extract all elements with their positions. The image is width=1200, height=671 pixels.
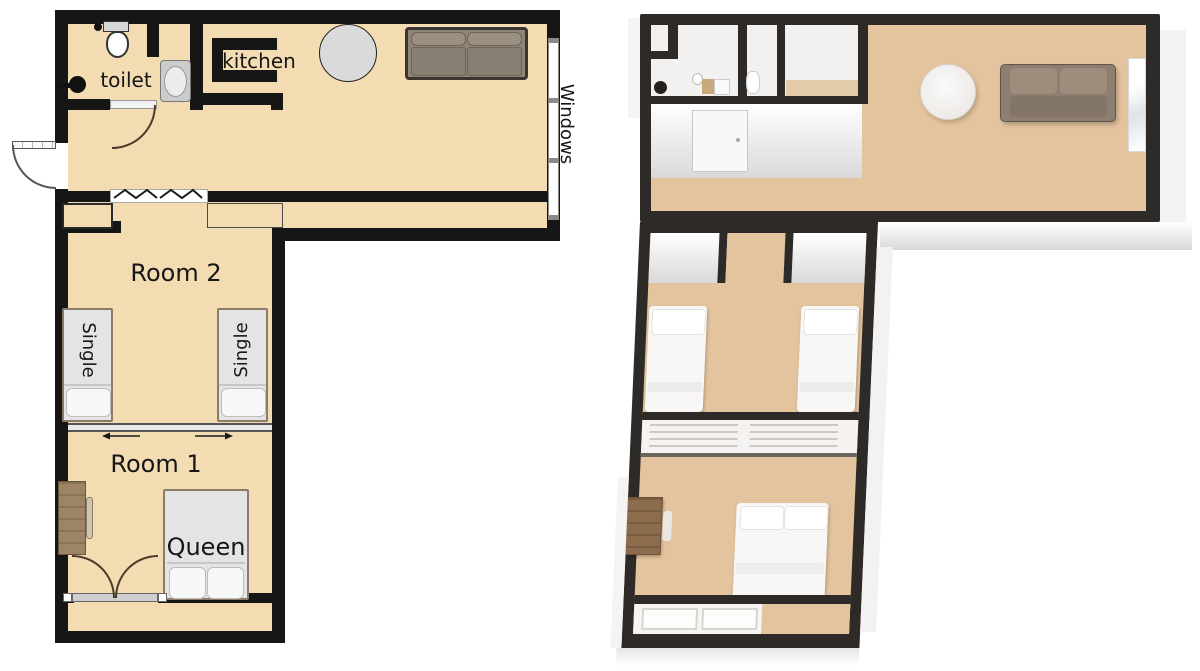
- toilet-3d-icon: [746, 71, 760, 94]
- entry-door-gap-3d: [725, 233, 785, 283]
- single-left-pillow-3d: [651, 309, 706, 335]
- band-bottom-face: [880, 222, 1192, 250]
- outer-face-top-left: [628, 18, 640, 118]
- sofa-3d-back-left: [1010, 68, 1057, 94]
- shower-floor-strip: [786, 80, 858, 96]
- single-bed-left-3d: [645, 306, 708, 412]
- sofa-3d-back-right: [1060, 68, 1107, 94]
- cabinet-3d-icon: [702, 79, 714, 94]
- queen-fold-3d: [736, 563, 824, 574]
- louver-slats-left: [649, 424, 738, 452]
- column-face-bottom: [616, 648, 860, 666]
- desk-chair-3d: [662, 511, 672, 541]
- queen-pillow-right-3d: [784, 506, 829, 530]
- round-table-3d: [920, 64, 976, 120]
- louver-slats-right: [749, 424, 838, 452]
- desk-3d: [624, 497, 663, 555]
- bathroom-right-wall: [858, 14, 868, 104]
- single-right-fold-3d: [800, 382, 854, 392]
- bathroom-divider-3: [777, 25, 785, 96]
- louver-wall-top: [642, 412, 858, 420]
- floor-plan-image: toilet kitchen Windows Room 2 Single Sin…: [0, 0, 1200, 671]
- single-right-pillow-3d: [803, 309, 858, 335]
- balcony-inner-wall: [634, 595, 850, 604]
- bathroom-bottom-wall: [651, 96, 862, 104]
- sofa-3d-seat: [1010, 96, 1107, 117]
- queen-pillow-left-3d: [740, 506, 785, 530]
- bathroom-wall-h: [651, 51, 670, 59]
- balcony-door-frame-2: [701, 608, 758, 630]
- toilet-3d-dark-icon: [654, 81, 667, 94]
- bedroom-column-3d: [595, 222, 907, 671]
- balcony-floor-tan: [761, 604, 850, 634]
- sofa-3d: [1000, 64, 1116, 122]
- sink-3d-icon: [714, 79, 730, 95]
- window-3d: [1128, 58, 1146, 152]
- single-bed-right-3d: [797, 306, 860, 412]
- balcony-door-frame-1: [641, 608, 698, 630]
- bathroom-wall-face: [651, 104, 862, 178]
- louver-bottom-line: [641, 453, 857, 457]
- queen-bed-3d: [732, 503, 828, 601]
- floor-plan-3d: [0, 0, 1200, 671]
- hall-door-knob: [736, 138, 740, 142]
- outer-face-right: [1160, 30, 1186, 225]
- single-left-fold-3d: [648, 382, 702, 392]
